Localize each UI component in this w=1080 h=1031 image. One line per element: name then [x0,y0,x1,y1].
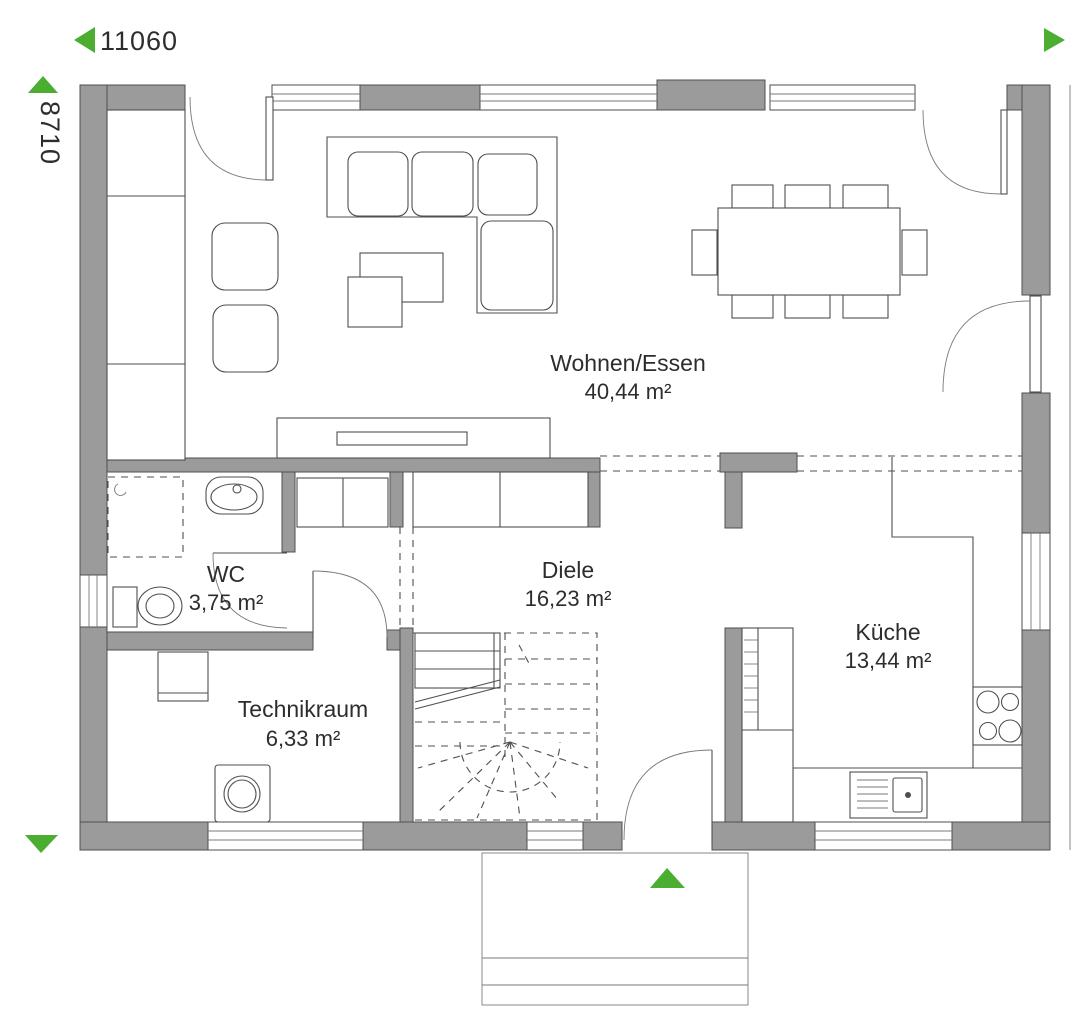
wall-bottom-3 [583,822,622,850]
window-top-1 [272,85,360,110]
room-label-kueche: Küche [855,619,920,645]
wall-bottom-2 [363,822,527,850]
window-bottom-stairs [527,822,583,850]
room-label-wohnen-essen: Wohnen/Essen [550,350,706,376]
door-top-left [190,97,273,180]
dimension-width-label: 11060 [100,26,178,56]
floorplan-canvas: 11060 8710 Wohnen/Essen 40,44 m² Diele 1… [0,0,1080,1031]
room-label-diele: Diele [542,557,594,583]
wall-right-middle [1022,393,1050,533]
wall-kitchen-t-horizontal [720,453,797,472]
wall-wc-east [282,472,295,552]
wall-closet-pier-2 [588,472,600,527]
shower-head-icon [115,484,126,495]
closet-large [413,472,588,527]
entrance-porch [482,853,748,1005]
hall-closets [297,472,588,527]
toilet [113,587,182,627]
window-right-kitchen [1022,533,1050,630]
stove [973,687,1022,745]
window-bottom-kitchen [815,822,952,850]
shower-dashed [108,477,183,557]
floorplan-svg: 11060 8710 Wohnen/Essen 40,44 m² Diele 1… [0,0,1080,1031]
kitchen-sink [850,772,927,818]
room-area-diele: 16,23 m² [525,586,612,611]
dimension-depth-label: 8710 [35,101,65,165]
wall-kitchen-t-vertical [725,472,742,528]
dimension-arrow-down-icon [25,835,58,853]
kitchen-counter-outline [892,457,973,768]
dining-table [718,208,900,295]
coffee-table-small [348,277,402,327]
room-area-wohnen-essen: 40,44 m² [585,379,672,404]
living-room-furniture [107,110,927,460]
dimension-arrow-up-icon [28,76,58,93]
pouf-1 [212,223,278,290]
wall-top-pier-1 [360,85,480,110]
dimension-arrow-right-icon [1044,28,1065,52]
wall-stairs-west [400,628,413,822]
walls [80,80,1050,850]
wall-left-upper [80,85,107,575]
wall-kitchen-west [725,628,742,822]
window-left-wc [80,575,107,627]
door-top-right [923,110,1007,194]
washing-machine [215,765,270,822]
window-bottom-technikraum [208,822,363,850]
wall-left-lower [80,627,107,850]
room-label-technikraum: Technikraum [238,696,368,722]
pouf-2 [213,305,278,372]
closet-small [297,478,388,527]
tall-cabinet [742,628,793,822]
wc-sink [206,477,263,514]
room-label-wc: WC [207,561,245,587]
utility-unit [158,652,208,701]
door-technikraum [313,571,387,639]
technikraum-fixtures [158,652,270,822]
wall-closet-pier-1 [390,472,403,527]
staircase [413,633,597,820]
room-labels: Wohnen/Essen 40,44 m² Diele 16,23 m² Küc… [189,350,932,751]
door-entrance [624,750,712,842]
wall-right-upper [1022,85,1050,295]
wall-bottom-5 [952,822,1050,850]
wall-right-lower [1022,630,1050,850]
dimension-arrow-left-icon [74,27,95,53]
window-top-3 [770,85,915,110]
wall-bottom-4 [712,822,815,850]
window-top-2 [480,85,657,110]
dining-set [692,185,927,318]
tv-lowboard [277,418,550,458]
room-area-wc: 3,75 m² [189,590,264,615]
room-area-technikraum: 6,33 m² [266,726,341,751]
wall-bottom-1 [80,822,208,850]
sideboard-left [107,110,185,460]
stairs-lower-steps [415,633,500,709]
wall-technikraum-top [107,632,313,650]
door-terrace-right [943,296,1041,392]
wall-top-pier-2 [657,80,765,110]
room-area-kueche: 13,44 m² [845,648,932,673]
